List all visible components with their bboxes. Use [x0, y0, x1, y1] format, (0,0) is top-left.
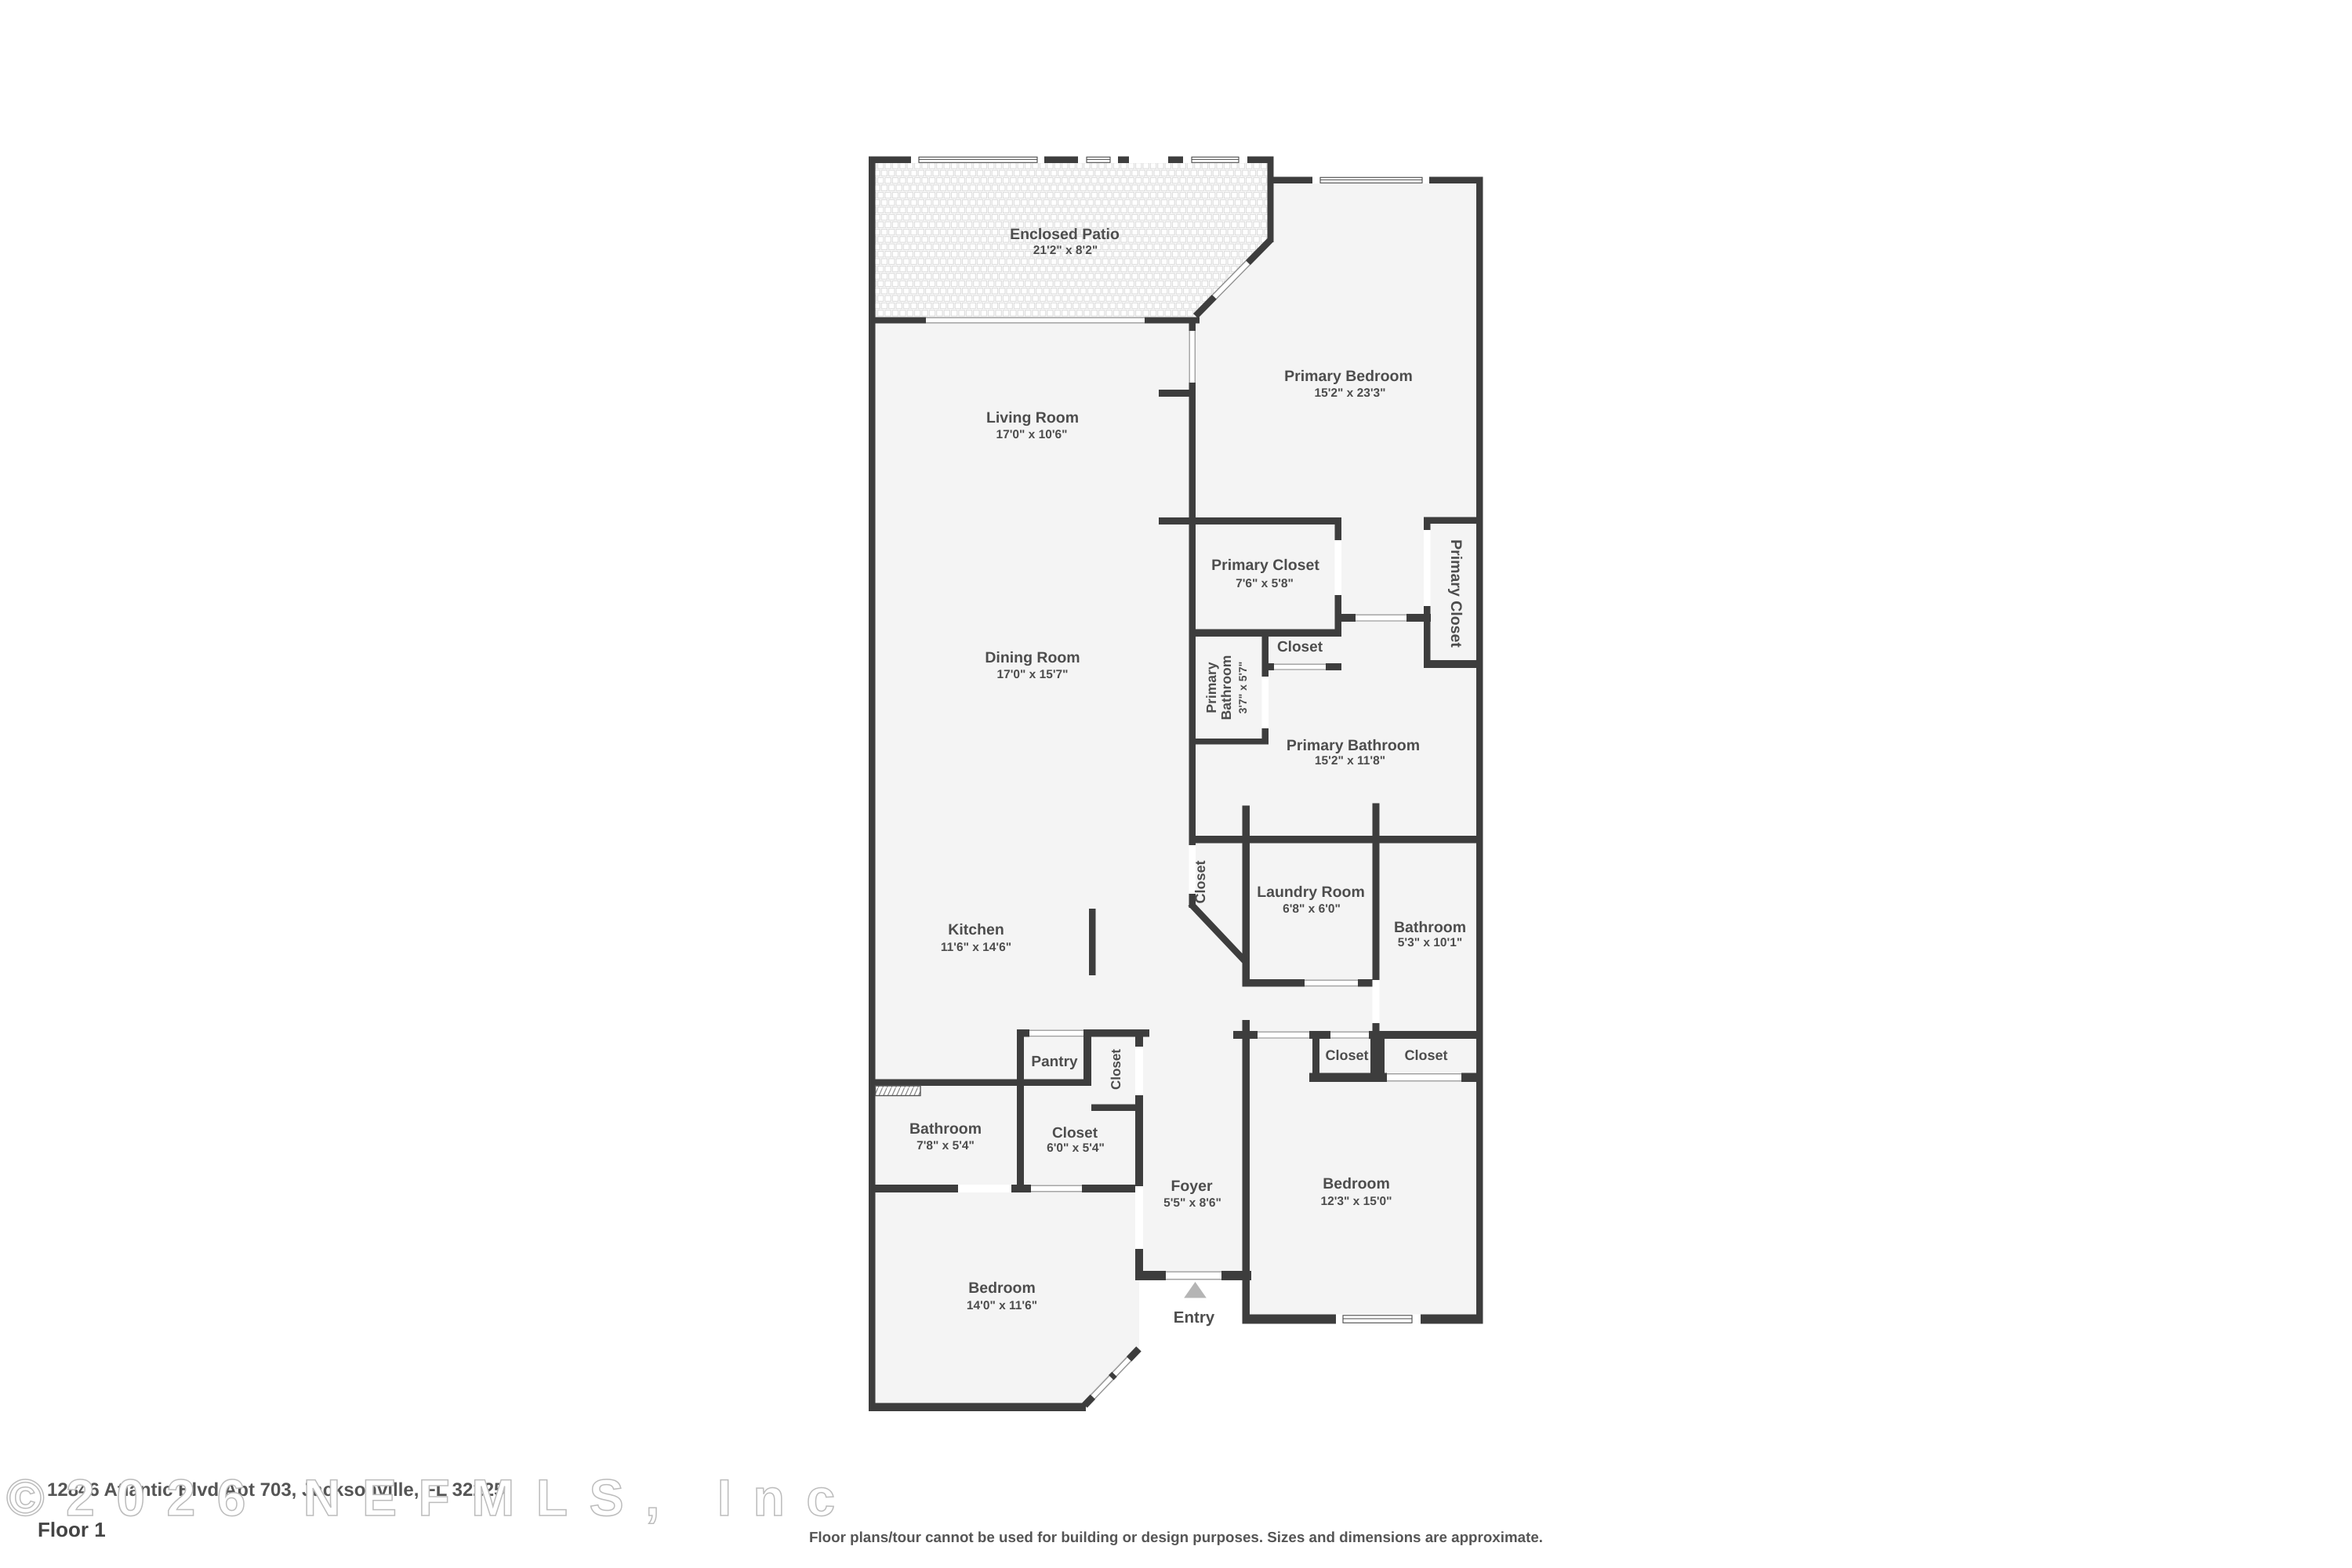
svg-text:Bedroom: Bedroom	[968, 1279, 1036, 1297]
svg-text:Primary: Primary	[1203, 662, 1219, 713]
svg-text:5'5" x 8'6": 5'5" x 8'6"	[1163, 1196, 1221, 1210]
svg-text:Enclosed Patio: Enclosed Patio	[1010, 226, 1120, 243]
svg-text:21'2" x 8'2": 21'2" x 8'2"	[1033, 244, 1098, 257]
svg-text:Closet: Closet	[1052, 1125, 1098, 1142]
svg-text:Foyer: Foyer	[1171, 1178, 1213, 1195]
svg-text:14'0" x 11'6": 14'0" x 11'6"	[967, 1299, 1037, 1312]
svg-text:Floor 1: Floor 1	[38, 1518, 106, 1541]
svg-text:Living Room: Living Room	[986, 409, 1079, 426]
svg-text:17'0" x 15'7": 17'0" x 15'7"	[996, 668, 1068, 681]
svg-text:Closet: Closet	[1109, 1049, 1123, 1090]
svg-text:Primary Bathroom: Primary Bathroom	[1287, 737, 1420, 754]
svg-text:Bedroom: Bedroom	[1323, 1175, 1390, 1192]
svg-text:Floor plans/tour cannot be use: Floor plans/tour cannot be used for buil…	[809, 1529, 1543, 1545]
svg-text:7'8" x 5'4": 7'8" x 5'4"	[916, 1139, 975, 1152]
svg-text:3'7" x 5'7": 3'7" x 5'7"	[1236, 662, 1249, 714]
svg-text:Laundry Room: Laundry Room	[1257, 884, 1365, 901]
svg-text:15'2" x 23'3": 15'2" x 23'3"	[1314, 387, 1385, 400]
svg-text:Bathroom: Bathroom	[909, 1120, 982, 1138]
svg-text:Primary Closet: Primary Closet	[1211, 557, 1319, 574]
svg-text:Primary Bedroom: Primary Bedroom	[1284, 368, 1413, 385]
svg-text:Entry: Entry	[1174, 1308, 1215, 1327]
svg-text:Primary Closet: Primary Closet	[1447, 539, 1465, 648]
svg-text:17'0" x 10'6": 17'0" x 10'6"	[996, 428, 1067, 441]
svg-text:Dining Room: Dining Room	[985, 649, 1080, 666]
svg-text:Closet: Closet	[1277, 639, 1323, 655]
svg-text:11'6" x 14'6": 11'6" x 14'6"	[941, 941, 1011, 954]
svg-text:7'6" x 5'8": 7'6" x 5'8"	[1236, 577, 1294, 590]
svg-text:Closet: Closet	[1192, 860, 1208, 903]
svg-text:15'2" x 11'8": 15'2" x 11'8"	[1315, 754, 1385, 768]
svg-text:Bathroom: Bathroom	[1218, 655, 1234, 720]
svg-text:Closet: Closet	[1325, 1047, 1368, 1063]
svg-text:Kitchen: Kitchen	[948, 921, 1004, 938]
svg-text:Closet: Closet	[1404, 1047, 1447, 1063]
svg-text:12'3" x 15'0": 12'3" x 15'0"	[1320, 1195, 1392, 1208]
svg-text:6'8" x 6'0": 6'8" x 6'0"	[1283, 902, 1341, 916]
svg-text:6'0" x 5'4": 6'0" x 5'4"	[1047, 1142, 1105, 1155]
svg-text:Pantry: Pantry	[1031, 1054, 1078, 1070]
svg-text:©2026 NEFMLS, Inc: ©2026 NEFMLS, Inc	[6, 1468, 857, 1526]
svg-text:Bathroom: Bathroom	[1394, 919, 1466, 936]
svg-text:5'3" x 10'1": 5'3" x 10'1"	[1398, 936, 1462, 949]
